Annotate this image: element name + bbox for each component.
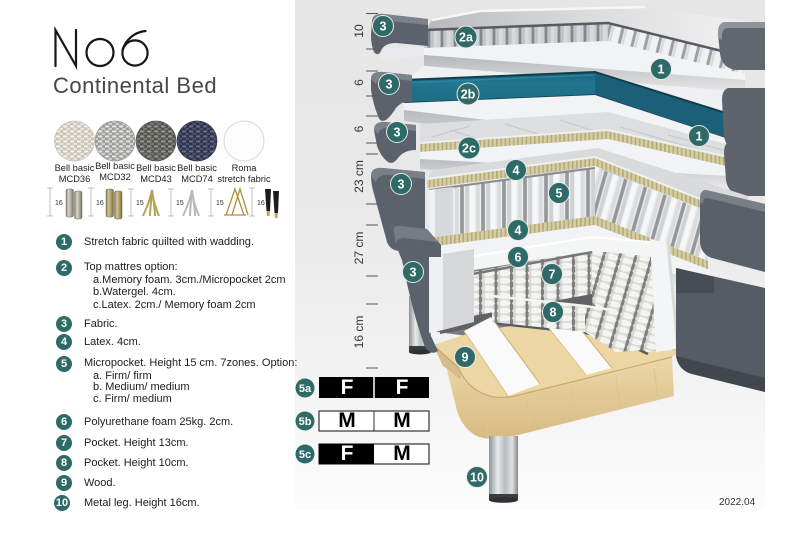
- svg-text:5b: 5b: [299, 416, 312, 428]
- svg-text:M: M: [393, 442, 411, 465]
- svg-text:F: F: [341, 376, 354, 399]
- svg-text:M: M: [393, 409, 411, 432]
- svg-text:5c: 5c: [299, 449, 311, 461]
- svg-text:M: M: [338, 409, 356, 432]
- svg-text:5a: 5a: [299, 383, 312, 395]
- svg-text:F: F: [396, 376, 409, 399]
- svg-text:F: F: [341, 442, 354, 465]
